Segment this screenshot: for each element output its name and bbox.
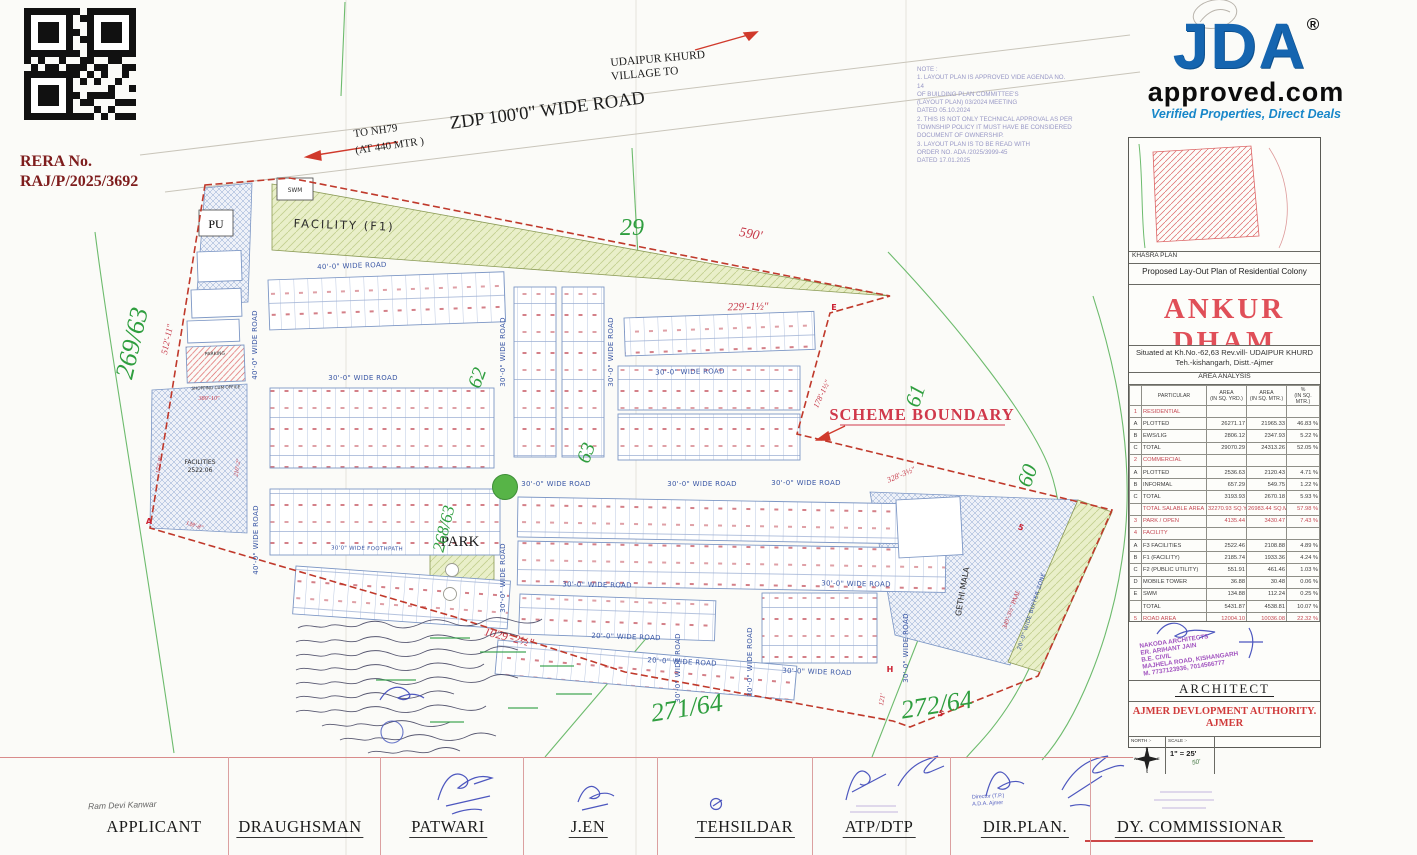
jda-logo-text: JDA bbox=[1173, 10, 1307, 82]
dim-229: 229'-1½" bbox=[727, 301, 768, 314]
road-label-30: 30'-0" WIDE ROAD bbox=[499, 543, 507, 613]
signature-strip-rule bbox=[0, 757, 1133, 758]
nh79-label-line1: TO NH79 bbox=[353, 122, 399, 140]
note-line: 2. THIS IS NOT ONLY TECHNICAL APPROVAL A… bbox=[917, 116, 1073, 124]
situated-line2: Teh.-kishangarh, Distt.-Ajmer bbox=[1129, 358, 1320, 368]
signature-separator bbox=[950, 757, 951, 855]
facilities-label: FACILITIES bbox=[184, 459, 215, 466]
north-scale-row: NORTH :- N E S W SCALE :- 1" = 25' 50' bbox=[1129, 737, 1320, 774]
area-analysis-table: PARTICULAR AREA(IN SQ. YRD.) AREA(IN SQ.… bbox=[1129, 385, 1320, 622]
note-line: (LAYOUT PLAN) 03/2024 MEETING bbox=[917, 99, 1073, 107]
road-label-30: 30'-0" WIDE ROAD bbox=[674, 633, 682, 703]
area-analysis-title: AREA ANALYSIS bbox=[1129, 373, 1320, 385]
north-label: NORTH :- bbox=[1131, 738, 1151, 743]
note-line: DOCUMENT OF OWNERSHIP. bbox=[917, 132, 1073, 140]
signature-squiggles bbox=[438, 756, 1214, 814]
dim-590: 590' bbox=[738, 224, 765, 243]
handwritten-note-hindi bbox=[296, 618, 592, 754]
plot-block bbox=[268, 272, 506, 330]
logo-tagline: Verified Properties, Direct Deals bbox=[1122, 106, 1370, 122]
scale-value: 1" = 25' bbox=[1170, 749, 1196, 758]
scale-cell: SCALE :- 1" = 25' 50' bbox=[1166, 737, 1215, 774]
situated-at: Situated at Kh.No.-62,63 Rev.vill- UDAIP… bbox=[1129, 346, 1320, 373]
signature-role-dy-commissionar: DY. COMMISSIONAR bbox=[1115, 817, 1285, 838]
note-line: DATED 17.01.2025 bbox=[917, 157, 1073, 165]
dim-512-11: 512'-11" bbox=[159, 323, 175, 355]
authority-label: AJMER DEVLOPMENT AUTHORITY. AJMER bbox=[1129, 702, 1320, 737]
plot-block bbox=[896, 497, 963, 558]
scanned-layout-plan-page: { "rera": { "label": "RERA No.", "number… bbox=[0, 0, 1417, 855]
signature-separator bbox=[812, 757, 813, 855]
road-label-40: 40'-0" WIDE ROAD bbox=[317, 261, 387, 271]
table-row: C TOTAL 29070.29 24313.26 52.05 % bbox=[1130, 442, 1320, 454]
road-label-30: 30'-0" WIDE ROAD bbox=[562, 580, 632, 589]
signature-separator bbox=[228, 757, 229, 855]
road-label-30: 30'-0" WIDE ROAD bbox=[746, 627, 754, 697]
khasra-271-64: 271/64 bbox=[649, 688, 725, 728]
table-row: 2 COMMERCIAL bbox=[1130, 454, 1320, 466]
plot-block bbox=[624, 311, 815, 356]
header-particular: PARTICULAR bbox=[1142, 386, 1207, 406]
dim-328: 328'-3½" bbox=[885, 464, 917, 485]
road-label-30: 30'-0" WIDE ROAD bbox=[499, 317, 507, 387]
rera-label: RERA No. bbox=[20, 152, 138, 172]
plot-block bbox=[762, 593, 877, 663]
plot-block bbox=[517, 497, 946, 544]
jda-logo: JDA® approved.com Verified Properties, D… bbox=[1122, 14, 1370, 122]
dim-380: 380'-10" bbox=[198, 396, 220, 402]
table-row: D MOBILE TOWER 36.88 30.48 0.06 % bbox=[1130, 576, 1320, 588]
khasra-269-63: 269/63 bbox=[109, 305, 154, 382]
signature-role-atp-dtp: ATP/DTP bbox=[843, 817, 916, 838]
pu-label: PU bbox=[208, 217, 224, 231]
road-label-30: 30'-0" WIDE ROAD bbox=[328, 374, 398, 382]
area-table-body: 1 RESIDENTIAL A PLOTTED 26271.17 21965.3… bbox=[1130, 406, 1320, 623]
road-label-30: 30'-0" WIDE ROAD bbox=[902, 613, 910, 683]
plot-block bbox=[618, 414, 800, 460]
road-label-40: 40'-0" WIDE ROAD bbox=[252, 505, 260, 575]
title-block-panel: KHASRA PLAN Proposed Lay-Out Plan of Res… bbox=[1128, 137, 1321, 748]
plot-block bbox=[191, 288, 242, 318]
architect-label: ARCHITECT bbox=[1129, 681, 1320, 702]
plot-block bbox=[187, 319, 240, 343]
foothpath-label: 30'0" WIDE FOOTHPATH bbox=[331, 545, 403, 552]
compass-icon: N E S W bbox=[1130, 745, 1164, 773]
svg-text:E: E bbox=[1157, 757, 1160, 761]
table-row: A PLOTTED 2536.63 2120.43 4.71 % bbox=[1130, 466, 1320, 478]
table-row: 4 FACILITY bbox=[1130, 527, 1320, 539]
signature-role-patwari: PATWARI bbox=[409, 817, 487, 838]
table-row: B EWS/LIG 2806.12 2347.93 5.22 % bbox=[1130, 430, 1320, 442]
khasra-sketch bbox=[1129, 138, 1320, 252]
signature-role-applicant: APPLICANT bbox=[104, 817, 203, 837]
header-area-mt: AREA(IN SQ. MTR.) bbox=[1247, 386, 1287, 406]
road-label-30: 30'-0" WIDE ROAD bbox=[771, 479, 841, 487]
note-line: DATED 05.10.2024 bbox=[917, 107, 1073, 115]
zdp-road-label: ZDP 100'0" WIDE ROAD bbox=[449, 88, 646, 133]
road-label-30: 30'-0" WIDE ROAD bbox=[655, 367, 725, 376]
plot-blocks bbox=[186, 250, 963, 700]
svg-text:W: W bbox=[1134, 757, 1138, 761]
registered-mark-icon: ® bbox=[1307, 15, 1320, 34]
colony-title: ANKUR DHAM bbox=[1129, 285, 1320, 346]
table-header-row: PARTICULAR AREA(IN SQ. YRD.) AREA(IN SQ.… bbox=[1130, 386, 1320, 406]
signature-role-draughsman: DRAUGHSMAN bbox=[236, 817, 363, 838]
plot-block bbox=[562, 287, 604, 457]
table-row: A F3 FACILITIES 2522.46 2108.88 4.89 % bbox=[1130, 540, 1320, 552]
signature-role-tehsildar: TEHSILDAR bbox=[695, 817, 795, 838]
table-row: 1 RESIDENTIAL bbox=[1130, 406, 1320, 418]
plot-block bbox=[514, 287, 556, 457]
dim-121: 121' bbox=[877, 693, 887, 707]
khasra-272-64: 272/64 bbox=[899, 685, 975, 725]
marker-e: E bbox=[831, 303, 836, 312]
plot-block bbox=[270, 388, 494, 468]
header-area-yd: AREA(IN SQ. YRD.) bbox=[1207, 386, 1247, 406]
table-row: TOTAL 5431.87 4538.81 10.07 % bbox=[1130, 601, 1320, 613]
khasra-62: 62 bbox=[464, 365, 492, 391]
note-line: NOTE : bbox=[917, 66, 1073, 74]
signature-separator bbox=[657, 757, 658, 855]
road-label-30: 30'-0" WIDE ROAD bbox=[607, 317, 615, 387]
header-pct: %(IN SQ. MTR.) bbox=[1287, 386, 1320, 406]
table-row: C F2 (PUBLIC UTILITY) 551.91 461.46 1.03… bbox=[1130, 564, 1320, 576]
signature-separator bbox=[523, 757, 524, 855]
architect-stamp-area: NAKODA ARCHITECTS ER. ARIHANT JAIN B.E. … bbox=[1129, 622, 1320, 681]
situated-line1: Situated at Kh.No.-62,63 Rev.vill- UDAIP… bbox=[1129, 348, 1320, 358]
note-line: 3. LAYOUT PLAN IS TO BE READ WITH bbox=[917, 141, 1073, 149]
table-row: B F1 (FACILITY) 2185.74 1933.36 4.24 % bbox=[1130, 552, 1320, 564]
plot-block bbox=[186, 345, 245, 383]
note-line: TOWNSHIP POLICY IT MUST HAVE BE CONSIDER… bbox=[917, 124, 1073, 132]
road-label-30: 30'-0" WIDE ROAD bbox=[521, 480, 591, 488]
parking-label: PARKING bbox=[205, 351, 226, 358]
road-label-30: 30'-0" WIDE ROAD bbox=[667, 480, 737, 488]
khasra-60: 60 bbox=[1011, 461, 1042, 490]
logo-domain: approved.com bbox=[1122, 78, 1370, 106]
rera-block: RERA No. RAJ/P/2025/3692 bbox=[20, 152, 138, 192]
signature-separator bbox=[380, 757, 381, 855]
svg-text:S: S bbox=[1146, 770, 1149, 773]
table-row: B INFORMAL 657.29 549.75 1.22 % bbox=[1130, 479, 1320, 491]
north-cell: NORTH :- N E S W bbox=[1129, 737, 1166, 774]
table-row: 5 ROAD AREA 12004.10 10036.08 22.32 % bbox=[1130, 613, 1320, 622]
road-label-30: 30'-0" WIDE ROAD bbox=[821, 579, 891, 588]
panel-subtitle: Proposed Lay-Out Plan of Residential Col… bbox=[1129, 264, 1320, 285]
signature-separator bbox=[1090, 757, 1091, 855]
table-row: C TOTAL 3193.93 2670.18 5.93 % bbox=[1130, 491, 1320, 503]
note-line: 1. LAYOUT PLAN IS APPROVED VIDE AGENDA N… bbox=[917, 74, 1073, 91]
khasra-29: 29 bbox=[620, 215, 644, 241]
rera-number: RAJ/P/2025/3692 bbox=[20, 172, 138, 192]
note-line: ORDER NO. ADA /2025/3999-45 bbox=[917, 149, 1073, 157]
approval-note-block: NOTE :1. LAYOUT PLAN IS APPROVED VIDE AG… bbox=[917, 66, 1073, 166]
table-row: TOTAL SALABLE AREA 32270.93 SQ.YRD 26983… bbox=[1130, 503, 1320, 515]
road-label-40: 40'-0" WIDE ROAD bbox=[251, 310, 259, 380]
signature-role-jen: J.EN bbox=[569, 817, 608, 838]
qr-code bbox=[24, 8, 136, 120]
swm-label: SWM bbox=[288, 188, 302, 194]
facilities-area-label: 2522.06 bbox=[188, 467, 213, 474]
pu-zone bbox=[196, 183, 252, 305]
svg-text:N: N bbox=[1146, 747, 1149, 751]
note-line: OF BUILDING PLAN COMMITTEE'S bbox=[917, 91, 1073, 99]
table-row: E SWM 134.88 112.24 0.25 % bbox=[1130, 588, 1320, 600]
khasra-plan-label: KHASRA PLAN bbox=[1129, 252, 1320, 264]
table-row: A PLOTTED 26271.17 21965.33 46.83 % bbox=[1130, 418, 1320, 430]
table-row: 3 PARK / OPEN 4135.44 3430.47 7.43 % bbox=[1130, 515, 1320, 527]
marker-a: A bbox=[146, 517, 153, 526]
scale-handwritten-note: 50' bbox=[1191, 758, 1201, 766]
dy-commissioner-underline bbox=[1085, 840, 1313, 842]
junction-green-circle bbox=[493, 475, 518, 500]
marker-h: H bbox=[887, 665, 894, 674]
scale-label: SCALE :- bbox=[1168, 738, 1187, 743]
signature-role-dir-plan: DIR.PLAN. bbox=[981, 817, 1069, 838]
road-label-20: 20'-0" WIDE ROAD bbox=[591, 632, 661, 642]
plot-block bbox=[197, 250, 242, 282]
